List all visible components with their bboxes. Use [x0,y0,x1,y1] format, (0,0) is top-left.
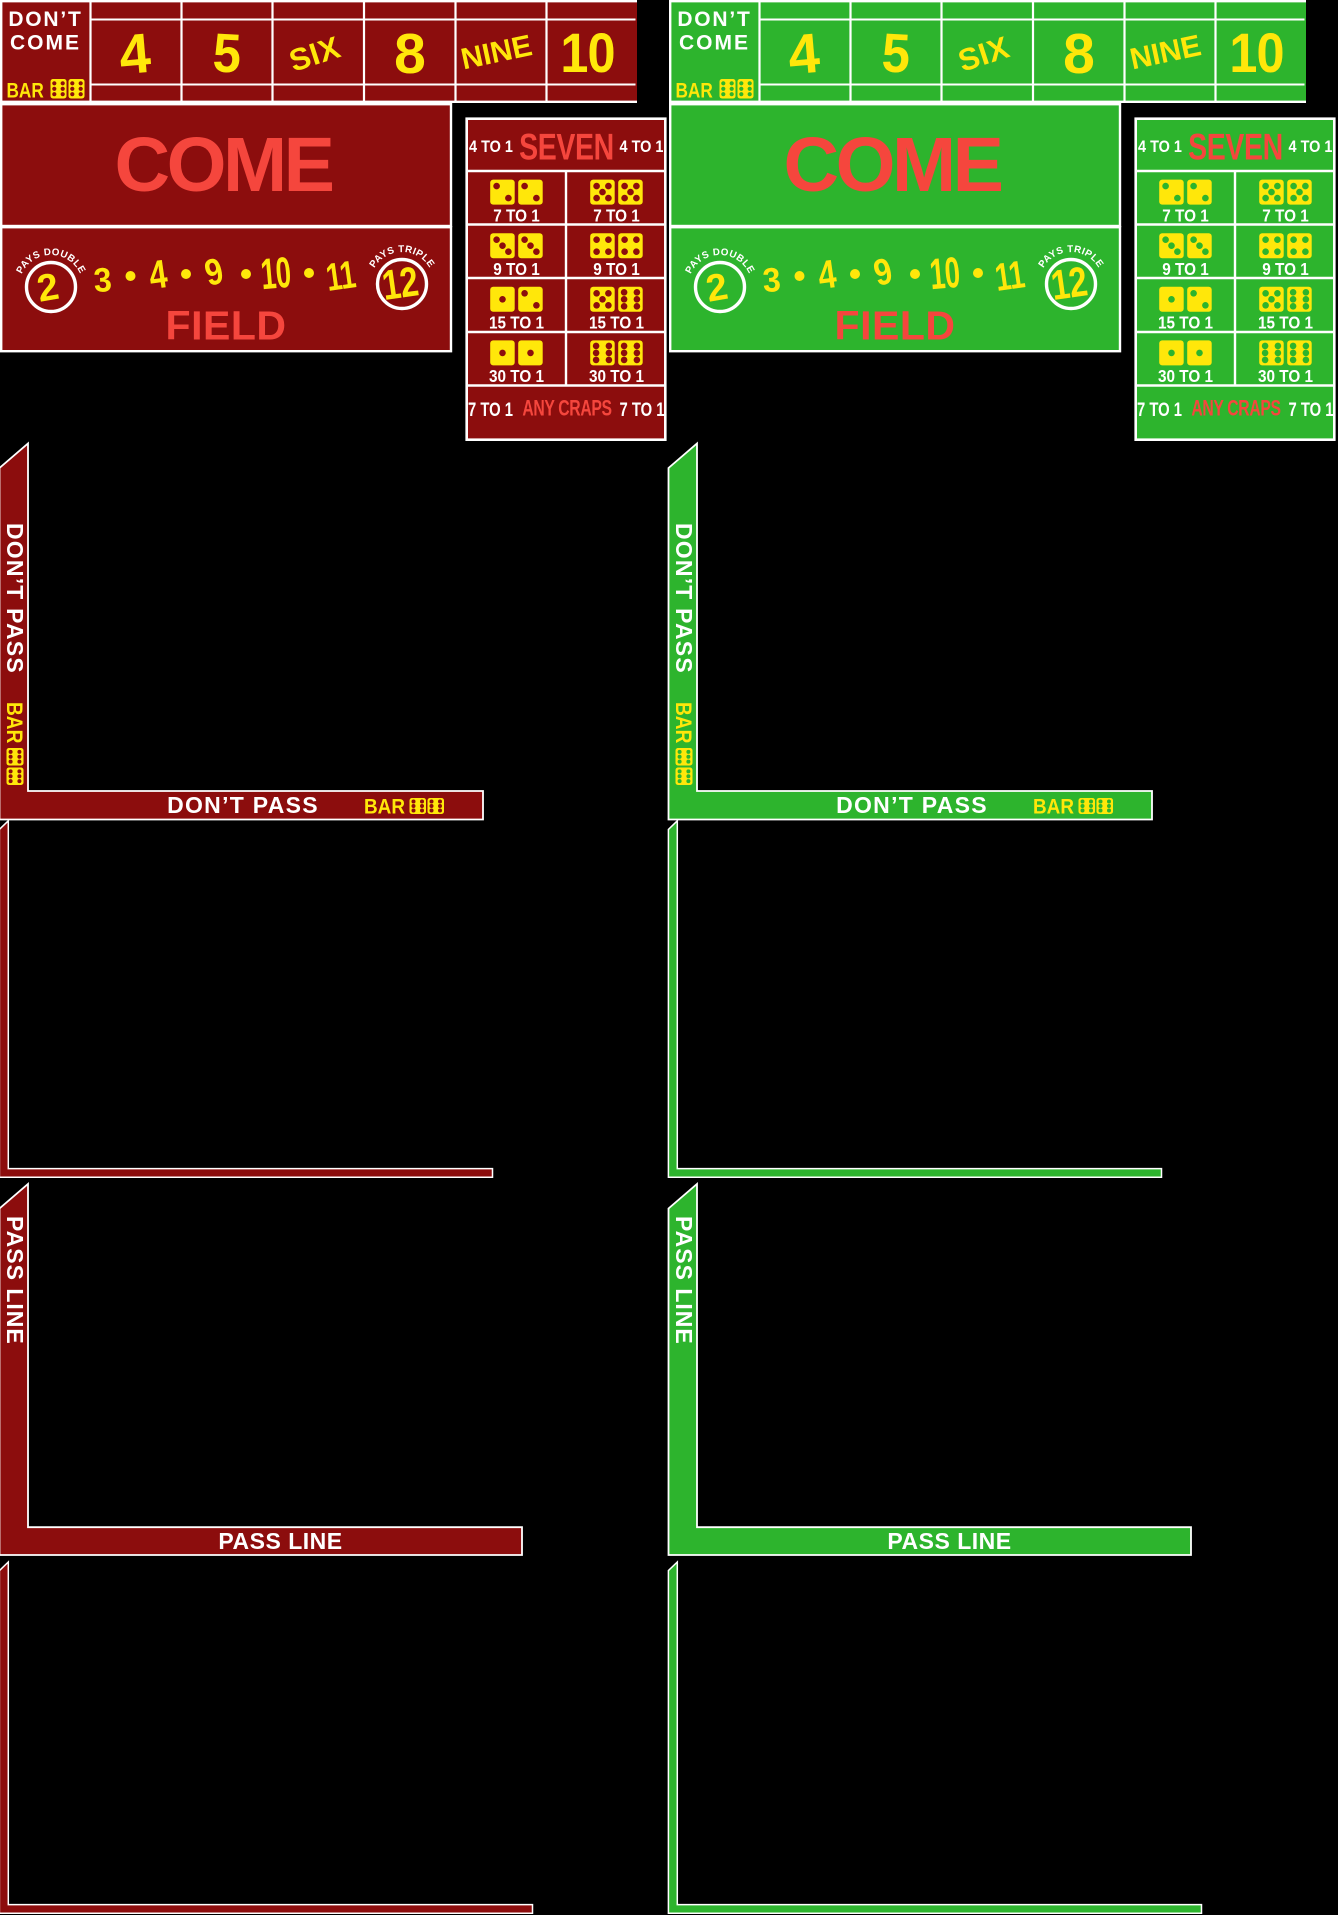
svg-text:7 TO 1: 7 TO 1 [493,205,539,225]
svg-text:SEVEN: SEVEN [1188,126,1283,167]
svg-text:4 TO 1: 4 TO 1 [469,138,513,156]
svg-text:FIELD: FIELD [835,303,956,349]
svg-text:ANY CRAPS: ANY CRAPS [1191,396,1281,421]
svg-text:7 TO 1: 7 TO 1 [1162,205,1208,225]
svg-text:4 TO 1: 4 TO 1 [1138,138,1182,156]
svg-text:COME: COME [784,122,1002,208]
svg-text:8: 8 [1063,22,1095,86]
svg-text:DON’T PASS: DON’T PASS [167,792,319,818]
svg-text:8: 8 [394,22,426,86]
svg-text:4: 4 [117,21,154,86]
svg-text:15 TO 1: 15 TO 1 [1158,312,1213,332]
svg-text:BAR: BAR [2,702,27,743]
svg-text:DON’T PASS: DON’T PASS [671,523,697,674]
svg-text:ANY CRAPS: ANY CRAPS [522,396,612,421]
svg-text:4: 4 [786,21,823,86]
svg-text:PASS LINE: PASS LINE [671,1216,697,1345]
svg-text:PASS LINE: PASS LINE [887,1528,1011,1554]
svg-text:10: 10 [1229,23,1283,85]
svg-text:9 TO 1: 9 TO 1 [1262,259,1308,279]
svg-text:DON’T PASS: DON’T PASS [2,523,28,674]
svg-text:DON’T: DON’T [8,8,82,31]
svg-text:FIELD: FIELD [166,303,287,349]
svg-text:DON’T: DON’T [677,8,751,31]
svg-text:BAR: BAR [364,795,405,818]
svg-text:30 TO 1: 30 TO 1 [589,366,644,386]
svg-text:15 TO 1: 15 TO 1 [589,312,644,332]
svg-text:30 TO 1: 30 TO 1 [1258,366,1313,386]
svg-text:DON’T PASS: DON’T PASS [836,792,988,818]
svg-text:12: 12 [379,257,421,308]
svg-text:BAR: BAR [7,80,44,103]
svg-text:30 TO 1: 30 TO 1 [1158,366,1213,386]
svg-text:BAR: BAR [1033,795,1074,818]
svg-text:10: 10 [560,23,614,85]
svg-text:7 TO 1: 7 TO 1 [468,399,513,420]
svg-text:10: 10 [928,247,962,298]
svg-text:3: 3 [761,261,782,300]
svg-text:PASS LINE: PASS LINE [218,1528,342,1554]
svg-text:15 TO 1: 15 TO 1 [489,312,544,332]
svg-text:3: 3 [92,261,113,300]
svg-text:7 TO 1: 7 TO 1 [1137,399,1182,420]
svg-text:COME: COME [679,32,750,55]
svg-text:7 TO 1: 7 TO 1 [1262,205,1308,225]
svg-text:BAR: BAR [671,702,696,743]
svg-text:BAR: BAR [676,80,713,103]
svg-text:4 TO 1: 4 TO 1 [1289,138,1333,156]
svg-text:7 TO 1: 7 TO 1 [620,399,665,420]
svg-text:SEVEN: SEVEN [519,126,614,167]
svg-text:COME: COME [10,32,81,55]
svg-text:5: 5 [880,22,911,85]
svg-text:9 TO 1: 9 TO 1 [593,259,639,279]
svg-text:11: 11 [992,253,1027,300]
svg-text:COME: COME [115,122,333,208]
svg-text:11: 11 [323,253,358,300]
svg-text:9 TO 1: 9 TO 1 [1162,259,1208,279]
svg-text:7 TO 1: 7 TO 1 [593,205,639,225]
svg-text:PASS LINE: PASS LINE [2,1216,28,1345]
svg-text:5: 5 [211,22,242,85]
svg-text:10: 10 [259,247,293,298]
svg-text:12: 12 [1048,257,1090,308]
svg-text:9 TO 1: 9 TO 1 [493,259,539,279]
svg-text:15 TO 1: 15 TO 1 [1258,312,1313,332]
svg-text:7 TO 1: 7 TO 1 [1289,399,1334,420]
svg-text:30 TO 1: 30 TO 1 [489,366,544,386]
svg-text:4 TO 1: 4 TO 1 [620,138,664,156]
